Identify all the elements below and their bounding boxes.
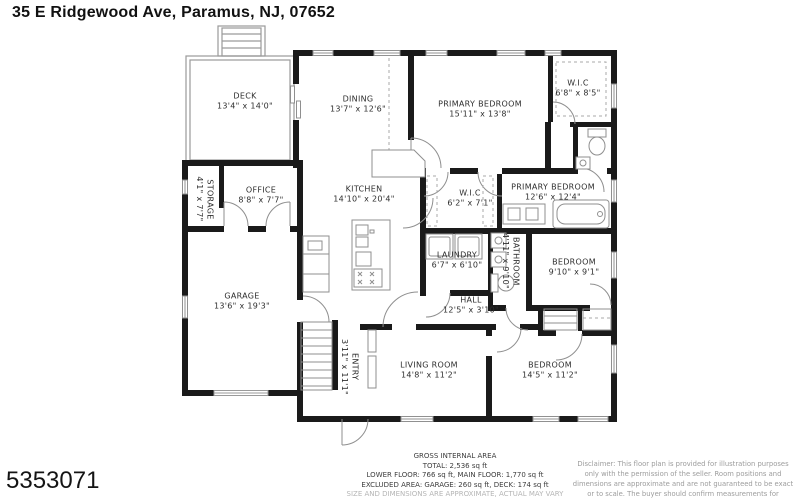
floor-plan-page: 35 E Ridgewood Ave, Paramus, NJ, 07652 — [0, 0, 800, 500]
kitchen-island — [352, 220, 390, 290]
entry-closet — [368, 330, 376, 388]
toilet-icon — [588, 129, 606, 155]
gia-floors: LOWER FLOOR: 766 sq ft, MAIN FLOOR: 1,77… — [290, 471, 620, 481]
room-label-garage: GARAGE13'6" x 19'3" — [214, 292, 270, 313]
disclaimer-text: Disclaimer: This floor plan is provided … — [572, 459, 794, 500]
garage-door — [214, 391, 268, 396]
sliding-door — [291, 86, 301, 118]
room-label-entry: ENTRY3'11" x 11'1" — [339, 339, 360, 395]
room-label-wic-2: W.I.C6'2" x 7'1" — [447, 189, 492, 210]
gross-internal-area: GROSS INTERNAL AREA TOTAL: 2,536 sq ft L… — [290, 452, 620, 500]
double-sink-icon — [503, 204, 545, 224]
deck-stairs — [218, 26, 265, 56]
gia-title: GROSS INTERNAL AREA — [290, 452, 620, 462]
bathtub-icon — [553, 200, 609, 228]
room-label-bedroom-1: BEDROOM9'10" x 9'1" — [549, 258, 600, 279]
room-label-dining: DINING13'7" x 12'6" — [330, 95, 386, 116]
bath-top-right — [576, 129, 606, 169]
room-label-living-room: LIVING ROOM14'8" x 11'2" — [400, 361, 458, 382]
gia-excluded: EXCLUDED AREA: GARAGE: 260 sq ft, DECK: … — [290, 481, 620, 491]
gia-total: TOTAL: 2,536 sq ft — [290, 462, 620, 472]
floor-plan-drawing — [0, 0, 800, 500]
stairs-main — [301, 322, 332, 390]
room-label-primary-bedroom-2: PRIMARY BEDROOM12'6" x 12'4" — [511, 183, 595, 204]
room-label-kitchen: KITCHEN14'10" x 20'4" — [333, 185, 394, 206]
room-label-laundry: LAUNDRY6'7" x 6'10" — [432, 251, 483, 272]
room-label-deck: DECK13'4" x 14'0" — [217, 92, 273, 113]
sink-icon — [576, 157, 590, 169]
room-label-bathroom: BATHROOM4'11" x 9'10" — [500, 233, 521, 289]
stove-icon — [354, 269, 382, 287]
primary-ensuite — [503, 200, 609, 228]
listing-id: 5353071 — [6, 467, 99, 495]
closet-shelves — [544, 309, 611, 330]
gia-note: SIZE AND DIMENSIONS ARE APPROXIMATE, ACT… — [290, 490, 620, 500]
room-label-primary-bedroom-1: PRIMARY BEDROOM15'11" x 13'8" — [438, 100, 522, 121]
room-label-hall: HALL12'5" x 3'10" — [443, 296, 499, 317]
room-label-office: OFFICE8'8" x 7'7" — [238, 186, 283, 207]
room-label-storage: STORAGE4'1" x 7'7" — [194, 176, 215, 221]
room-label-bedroom-2: BEDROOM14'5" x 11'2" — [522, 361, 578, 382]
room-label-wic-1: W.I.C6'8" x 8'5" — [555, 79, 600, 100]
